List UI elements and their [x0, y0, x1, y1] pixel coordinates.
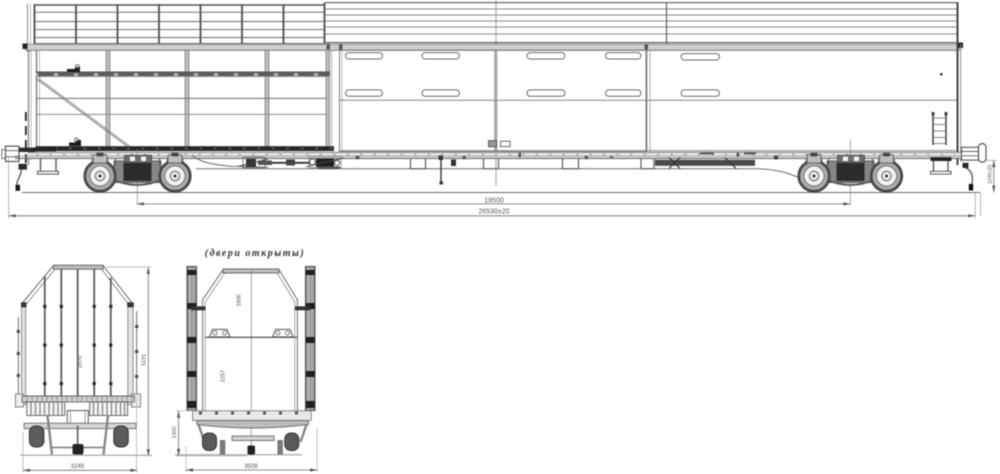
svg-text:2870: 2870 [78, 356, 84, 368]
svg-text:26530±20: 26530±20 [478, 209, 509, 216]
svg-text:3508: 3508 [244, 463, 258, 470]
svg-text:(двери открыты): (двери открыты) [205, 248, 305, 259]
svg-text:5191: 5191 [142, 354, 148, 366]
svg-text:1246±20: 1246±20 [988, 164, 994, 184]
svg-text:1300: 1300 [172, 427, 178, 439]
svg-text:19500: 19500 [484, 198, 504, 205]
svg-text:2257: 2257 [221, 370, 227, 383]
svg-text:3245: 3245 [71, 463, 85, 470]
svg-text:1800: 1800 [237, 294, 243, 306]
